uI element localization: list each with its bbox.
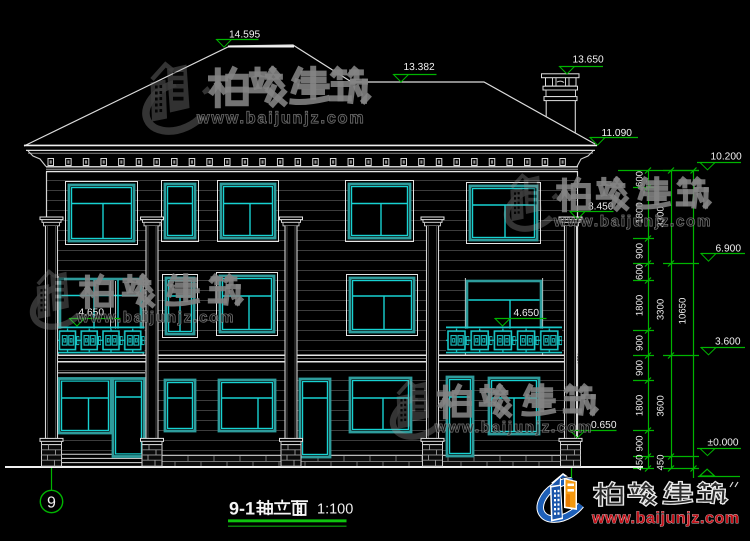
svg-text:13.650: 13.650	[573, 55, 604, 66]
svg-text:3600: 3600	[656, 395, 667, 416]
svg-text:600: 600	[635, 264, 646, 280]
svg-text:1800: 1800	[635, 295, 646, 316]
svg-text:14.595: 14.595	[229, 30, 260, 41]
svg-text:11.090: 11.090	[602, 128, 633, 139]
svg-text:9: 9	[47, 495, 56, 512]
svg-text:0.650: 0.650	[591, 420, 617, 431]
svg-text:3300: 3300	[656, 299, 667, 320]
svg-text:www.baijunjz.com: www.baijunjz.com	[196, 110, 366, 127]
svg-text:13.382: 13.382	[404, 62, 435, 73]
svg-text:900: 900	[635, 335, 646, 351]
svg-text:900: 900	[635, 360, 646, 376]
svg-text:1:100: 1:100	[317, 502, 353, 518]
svg-text:www.baijunjz.com: www.baijunjz.com	[591, 510, 740, 527]
svg-text:6.900: 6.900	[716, 243, 742, 254]
svg-text:3.600: 3.600	[715, 337, 741, 348]
svg-text:450: 450	[635, 454, 646, 470]
svg-text:900: 900	[635, 243, 646, 259]
svg-text:450: 450	[656, 454, 667, 470]
svg-text:8.450: 8.450	[588, 202, 614, 213]
svg-text:4.650: 4.650	[514, 308, 540, 319]
svg-text:900: 900	[635, 435, 646, 451]
svg-text:±0.000: ±0.000	[708, 437, 739, 448]
svg-text:www.baijunjz.com: www.baijunjz.com	[434, 419, 593, 436]
svg-text:10.200: 10.200	[711, 152, 742, 163]
svg-text:www.baijunjz.com: www.baijunjz.com	[76, 309, 235, 326]
svg-text:10650: 10650	[678, 298, 689, 325]
svg-text:9-1: 9-1	[229, 499, 255, 519]
svg-text:1800: 1800	[635, 395, 646, 416]
svg-text:www.baijunjz.com: www.baijunjz.com	[553, 213, 712, 230]
